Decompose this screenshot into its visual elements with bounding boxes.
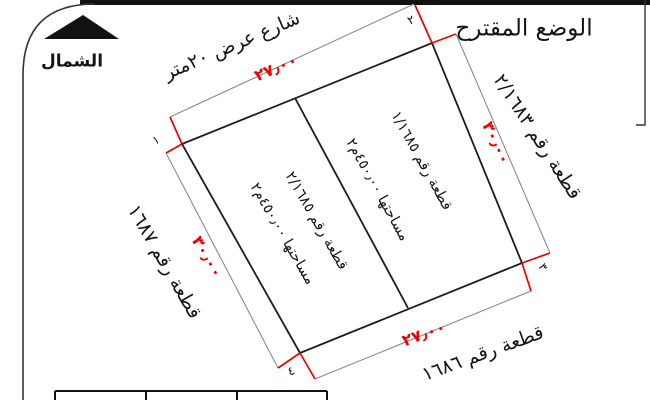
frame-top-bar — [80, 0, 650, 5]
tick-corner2-top — [415, 5, 432, 43]
tick-corner1-top — [170, 117, 182, 144]
north-arrow-icon — [44, 15, 119, 39]
page-title: الوضع المقترح — [455, 18, 592, 41]
frame-right-border — [636, 0, 645, 125]
tick-corner3-bottom — [522, 263, 531, 291]
bottom-table-grid — [55, 391, 327, 400]
plot-boundary — [182, 43, 522, 353]
survey-drawing-page: الوضع المقترح الشمال شارع عرض ٢٠متر قطعة… — [0, 0, 650, 400]
north-label: الشمال — [41, 54, 103, 71]
tick-corner2-right — [432, 34, 456, 43]
tick-corner1-left — [166, 144, 182, 153]
tick-corner4-bottom — [300, 353, 315, 379]
